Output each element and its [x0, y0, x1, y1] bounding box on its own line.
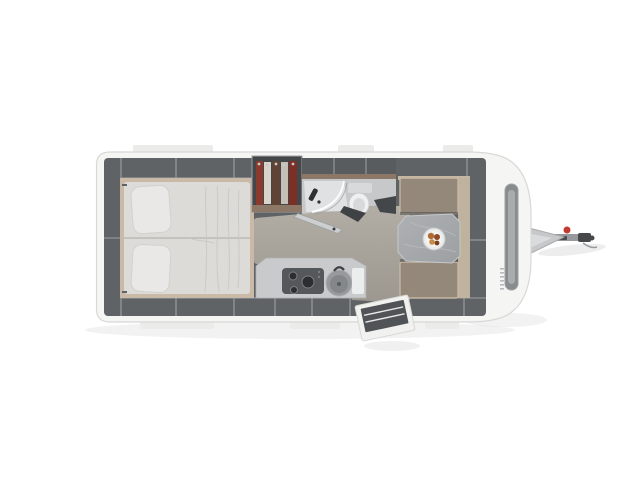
burner [291, 287, 298, 294]
fruit [434, 234, 440, 240]
hanging-garment [272, 161, 280, 205]
door-shadow [364, 341, 420, 351]
worktop-board [352, 268, 364, 294]
brand-mark-dash [500, 284, 504, 286]
hanger-hook [258, 163, 261, 166]
dinette-bench-seat [400, 262, 458, 298]
bed-latch [122, 291, 127, 293]
burner [289, 272, 297, 280]
front-window-glass [508, 190, 515, 284]
dinette [398, 176, 470, 298]
hanger-hook [275, 163, 278, 166]
hanging-garment [264, 162, 271, 204]
fruit [435, 241, 440, 246]
hanging-garment [281, 162, 288, 204]
coupling-tip [590, 236, 595, 241]
pillow [130, 185, 171, 235]
hanger-hook [283, 164, 286, 167]
fruit [428, 233, 434, 239]
hanger-hook [292, 163, 295, 166]
hob-knob [318, 271, 320, 273]
coupling-head [578, 233, 591, 242]
door-handle [333, 228, 336, 231]
jockey-wheel-knob [564, 227, 571, 234]
burner [302, 276, 314, 288]
hanger-hook [266, 164, 269, 167]
hanging-garment [256, 161, 263, 205]
caravan-floorplan [0, 0, 640, 480]
brand-mark-dash [500, 276, 504, 278]
brand-mark-dash [500, 288, 504, 290]
brand-mark-dash [500, 268, 504, 270]
fruit [429, 239, 435, 245]
brand-mark-dash [500, 272, 504, 274]
hanging-garment [289, 161, 297, 205]
cabinet-wood-edge [302, 174, 396, 179]
front-window [505, 184, 518, 290]
kitchen [256, 258, 366, 298]
caravan-floorplan-render [0, 0, 640, 480]
fruit-bowl-inner [426, 231, 442, 247]
brand-mark-dash [500, 280, 504, 282]
toilet-tank [348, 183, 372, 193]
shower-drain [317, 200, 320, 203]
bathroom-top-cabinet [302, 158, 396, 176]
wardrobe-base-trim [252, 205, 302, 212]
dinette-bench-seat [400, 178, 458, 214]
sink-drain [337, 282, 341, 286]
bed-area [120, 178, 254, 298]
hob-knob [318, 276, 320, 278]
pillow [131, 244, 171, 293]
wardrobe [252, 156, 302, 212]
bed-latch [122, 184, 127, 186]
